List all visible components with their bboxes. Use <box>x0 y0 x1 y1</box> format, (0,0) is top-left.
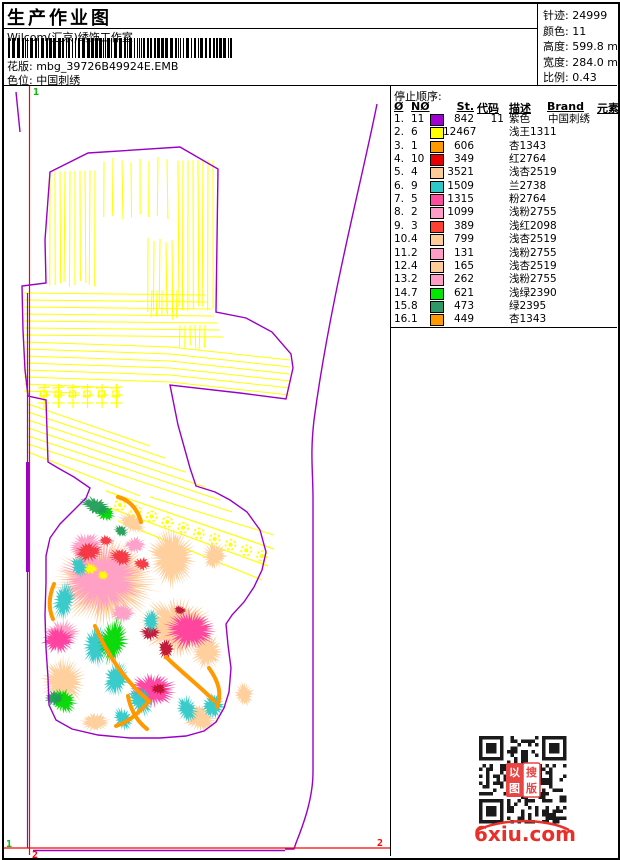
production-worksheet: { "header": { "title": "生产作业图", "subtitl… <box>0 0 620 860</box>
qr-module <box>500 785 504 789</box>
qr-module <box>479 799 504 803</box>
qr-module <box>507 806 511 810</box>
qr-module <box>532 740 536 744</box>
stitch-line <box>122 160 123 219</box>
qr-module <box>500 764 504 768</box>
qr-module <box>535 754 539 758</box>
rosette-motif <box>213 537 217 541</box>
qr-module <box>546 799 550 803</box>
qr-module <box>556 789 560 793</box>
qr-module <box>563 796 567 800</box>
qr-module <box>560 799 564 803</box>
qr-module <box>546 810 550 814</box>
qr-module <box>553 810 557 814</box>
qr-module <box>511 750 515 754</box>
qr-module <box>542 782 546 786</box>
stitch-line <box>24 328 220 330</box>
stitch-line <box>24 293 205 295</box>
qr-module <box>521 750 525 754</box>
rosette-motif <box>165 520 169 524</box>
qr-module <box>556 817 560 821</box>
qr-module <box>549 775 553 779</box>
qr-module <box>549 782 553 786</box>
qr-module <box>518 817 522 821</box>
qr-module <box>479 792 483 796</box>
qr-module <box>563 799 567 803</box>
qr-module <box>521 754 525 758</box>
stitch-line <box>69 171 70 287</box>
qr-module <box>549 771 553 775</box>
stitch-line <box>24 335 223 337</box>
rosette-motif <box>181 526 185 530</box>
rosette-motif <box>118 503 122 507</box>
qr-module <box>525 740 529 744</box>
stitch-line <box>178 161 179 307</box>
qr-module <box>486 775 490 779</box>
qr-module <box>546 771 550 775</box>
stitch-line <box>24 314 214 316</box>
qr-module <box>511 754 515 758</box>
qr-module <box>532 750 536 754</box>
stitch-line <box>157 157 158 216</box>
qr-module <box>500 771 504 775</box>
qr-module <box>549 817 553 821</box>
stitch-line <box>159 239 160 309</box>
stitch-line <box>82 387 94 388</box>
qr-module <box>521 740 525 744</box>
qr-module <box>535 813 539 817</box>
stitch-line <box>202 160 203 307</box>
qr-module <box>542 799 546 803</box>
qr-module <box>546 806 550 810</box>
qr-module <box>479 799 483 824</box>
qr-module <box>521 813 525 817</box>
qr-module <box>500 736 504 761</box>
qr-module <box>511 736 515 740</box>
qr-module <box>521 757 525 761</box>
qr-module <box>514 740 518 744</box>
qr-module <box>507 750 511 754</box>
qr-module <box>500 799 504 824</box>
qr-module <box>479 736 483 761</box>
side-seam-curve <box>285 104 377 849</box>
qr-module <box>556 806 560 810</box>
qr-module <box>553 817 557 821</box>
stitch-line <box>24 321 217 323</box>
qr-module <box>556 810 560 814</box>
qr-module <box>546 813 550 817</box>
qr-module <box>542 789 546 793</box>
qr-module <box>493 775 497 779</box>
qr-module <box>525 754 529 758</box>
qr-module <box>497 782 501 786</box>
qr-module <box>511 806 515 810</box>
stitch-line <box>64 171 65 282</box>
qr-module <box>486 771 490 775</box>
qr-module <box>514 747 518 751</box>
rosette-motif <box>260 554 264 558</box>
qr-module <box>486 782 490 786</box>
qr-module <box>563 806 567 810</box>
qr-module <box>563 736 567 761</box>
qr-module <box>549 785 553 789</box>
stitch-line <box>24 300 208 302</box>
stitch-line <box>60 171 61 283</box>
qr-module <box>560 796 564 800</box>
qr-module <box>528 813 532 817</box>
qr-module <box>493 782 497 786</box>
qr-module <box>507 810 511 814</box>
qr-module <box>549 768 553 772</box>
stitch-line <box>167 159 168 219</box>
rosette-motif <box>150 514 154 518</box>
stitch-line <box>24 307 211 309</box>
qr-module <box>479 782 483 786</box>
sequence-marker: 2 <box>32 850 38 860</box>
qr-module <box>542 736 546 761</box>
qr-module <box>563 764 567 768</box>
stitch-line <box>38 387 50 388</box>
qr-module <box>511 740 515 744</box>
qr-module <box>500 782 504 786</box>
qr-module <box>553 789 557 793</box>
stitch-line <box>198 160 199 306</box>
qr-module <box>483 764 487 768</box>
qr-module <box>521 817 525 821</box>
qr-module <box>486 768 490 772</box>
qr-module <box>479 775 483 779</box>
qr-module <box>542 810 546 814</box>
embroidery-blob <box>79 713 111 732</box>
qr-module <box>535 810 539 814</box>
stamp-char-bl: 图 <box>509 782 520 795</box>
rosette-motif <box>197 531 201 535</box>
qr-module <box>518 743 522 747</box>
qr-module <box>528 740 532 744</box>
rosette-motif <box>244 548 248 552</box>
embroidery-blob <box>201 541 227 570</box>
stitch-line <box>89 171 90 285</box>
qr-module <box>479 768 483 772</box>
qr-module <box>525 750 529 754</box>
qr-module <box>549 778 553 782</box>
qr-module <box>549 743 560 754</box>
design-canvas: 1122以搜图版 <box>0 0 620 860</box>
qr-module <box>549 813 553 817</box>
qr-module <box>553 813 557 817</box>
sequence-marker: 2 <box>377 838 383 849</box>
stitch-line <box>131 162 132 217</box>
qr-module <box>532 799 536 803</box>
qr-module <box>546 792 550 796</box>
embroidery-blob <box>234 681 254 707</box>
stamp-char-tl: 以 <box>509 766 520 779</box>
qr-module <box>486 778 490 782</box>
qr-module <box>486 806 497 817</box>
qr-module <box>549 799 553 803</box>
qr-module <box>528 806 532 810</box>
qr-module <box>528 743 532 747</box>
qr-module <box>507 803 511 807</box>
qr-module <box>560 789 564 793</box>
watermark-text: 6xiu.com <box>474 822 574 846</box>
embroidery-blob <box>144 522 202 593</box>
qr-module <box>528 799 532 803</box>
qr-module <box>490 768 494 772</box>
qr-module <box>560 810 564 814</box>
stamp-char-br: 版 <box>526 781 537 795</box>
qr-module <box>514 757 518 761</box>
qr-module <box>497 775 501 779</box>
qr-module <box>511 747 515 751</box>
stitch-line <box>85 171 86 283</box>
qr-module <box>479 736 504 740</box>
qr-module <box>525 803 529 807</box>
qr-module <box>542 792 546 796</box>
stitch-line <box>53 387 65 388</box>
qr-module <box>500 768 504 772</box>
stitch-line <box>182 160 183 310</box>
qr-module <box>553 764 557 768</box>
qr-module <box>546 782 550 786</box>
qr-module <box>528 817 532 821</box>
qr-module <box>493 789 497 793</box>
qr-module <box>514 750 518 754</box>
sequence-marker: 1 <box>33 87 39 98</box>
qr-module <box>525 799 529 803</box>
qr-module <box>521 810 525 814</box>
stem-stitch <box>50 584 54 619</box>
qr-module <box>511 810 515 814</box>
qr-module <box>486 785 490 789</box>
qr-module <box>535 736 539 740</box>
stitch-line <box>153 241 154 310</box>
stitch-line <box>67 387 79 388</box>
qr-module <box>542 813 546 817</box>
qr-module <box>483 792 487 796</box>
stitch-line <box>199 325 200 350</box>
qr-module <box>560 778 564 782</box>
qr-module <box>479 757 504 761</box>
qr-module <box>535 743 539 747</box>
stitch-line <box>28 452 140 496</box>
stitch-line <box>28 428 205 487</box>
qr-module <box>546 764 550 768</box>
qr-module <box>483 785 487 789</box>
qr-module <box>546 778 550 782</box>
qr-module <box>563 775 567 779</box>
qr-module <box>490 792 494 796</box>
qr-module <box>542 736 567 740</box>
qr-module <box>525 757 529 761</box>
qr-module <box>542 796 546 800</box>
rosette-motif <box>228 543 232 547</box>
qr-module <box>542 768 546 772</box>
sequence-marker: 1 <box>6 839 12 850</box>
qr-module <box>507 799 511 803</box>
stitch-line <box>112 158 113 216</box>
left-outline-dash <box>16 92 20 132</box>
qr-module <box>560 817 564 821</box>
qr-module <box>546 817 550 821</box>
stamp-char-tr: 搜 <box>526 765 538 779</box>
qr-module <box>518 799 522 803</box>
qr-module <box>490 764 494 768</box>
qr-module <box>563 817 567 821</box>
qr-module <box>542 757 567 761</box>
stitch-line <box>111 387 123 388</box>
qr-module <box>486 792 490 796</box>
qr-module <box>497 778 501 782</box>
qr-module <box>507 817 511 821</box>
qr-module <box>542 778 546 782</box>
qr-module <box>486 743 497 754</box>
qr-module <box>514 803 518 807</box>
qr-module <box>535 806 539 810</box>
